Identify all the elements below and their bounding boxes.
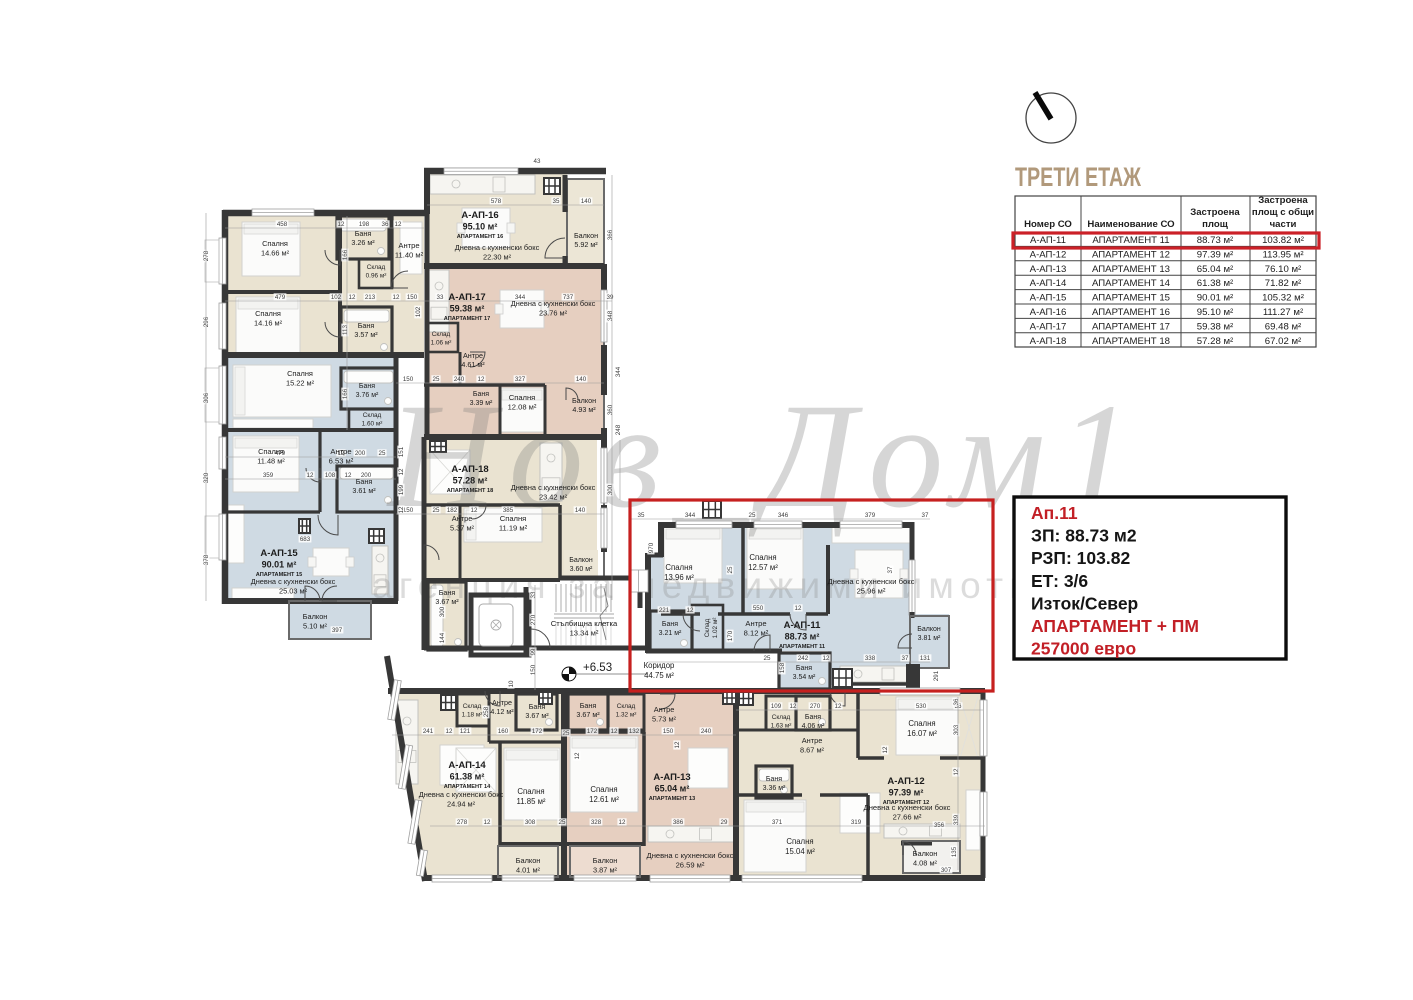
svg-text:241: 241 [423,728,434,735]
svg-text:16.07 м²: 16.07 м² [907,729,937,738]
svg-text:308: 308 [525,819,536,826]
svg-text:257000 евро: 257000 евро [1031,639,1136,659]
svg-text:26.59 м²: 26.59 м² [676,861,705,870]
svg-text:61.38 м²: 61.38 м² [450,772,485,782]
svg-text:10: 10 [508,680,515,687]
svg-text:22.30 м²: 22.30 м² [483,252,512,261]
svg-text:970: 970 [648,542,655,553]
svg-text:ТРЕТИ ЕТАЖ: ТРЕТИ ЕТАЖ [1015,162,1141,192]
svg-text:Дневна с кухненски бокс: Дневна с кухненски бокс [647,851,734,860]
svg-text:65.04 м²: 65.04 м² [1197,264,1234,275]
svg-text:А-АП-13: А-АП-13 [653,772,690,783]
svg-text:12.57 м²: 12.57 м² [748,563,778,572]
svg-text:АПАРТАМЕНТ 15: АПАРТАМЕНТ 15 [1092,293,1170,304]
svg-text:Спалня: Спалня [509,393,536,402]
svg-text:Спалня: Спалня [262,239,288,248]
svg-text:12: 12 [398,468,405,475]
svg-text:1.32 м²: 1.32 м² [616,711,637,718]
svg-text:Ап.11: Ап.11 [1031,503,1078,523]
svg-text:37: 37 [902,655,909,662]
svg-text:12: 12 [823,655,830,662]
svg-text:площ с общи: площ с общи [1252,207,1314,218]
svg-text:348: 348 [607,310,614,321]
svg-text:Изток/Север: Изток/Север [1031,593,1138,613]
svg-text:111.27 м²: 111.27 м² [1263,307,1304,318]
svg-text:АПАРТАМЕНТ 18: АПАРТАМЕНТ 18 [447,488,493,494]
svg-text:240: 240 [454,376,465,383]
svg-text:Склад: Склад [367,264,386,271]
svg-text:А-АП-11: А-АП-11 [784,620,822,631]
svg-text:76.10 м²: 76.10 м² [1265,264,1302,275]
svg-text:13.34 м²: 13.34 м² [570,629,599,638]
svg-text:242: 242 [798,655,809,662]
svg-text:12: 12 [345,472,352,479]
svg-text:Баня: Баня [473,391,489,398]
svg-text:37: 37 [887,566,894,573]
svg-text:307: 307 [941,867,952,874]
svg-text:АПАРТАМЕНТ 13: АПАРТАМЕНТ 13 [649,796,695,802]
svg-text:99: 99 [530,648,537,655]
svg-text:105.32 м²: 105.32 м² [1262,293,1305,304]
svg-text:3.61 м²: 3.61 м² [352,486,376,495]
svg-text:ЕТ: 3/6: ЕТ: 3/6 [1031,571,1088,591]
svg-text:97.39 м²: 97.39 м² [889,788,924,798]
svg-text:458: 458 [277,221,288,228]
svg-text:1.63 м²: 1.63 м² [771,722,792,729]
svg-text:23.76 м²: 23.76 м² [539,308,568,317]
svg-text:182: 182 [447,507,458,514]
svg-text:Дневна с кухненски бокс: Дневна с кухненски бокс [828,577,915,586]
svg-text:12: 12 [307,472,314,479]
svg-text:386: 386 [673,819,684,826]
svg-text:303: 303 [953,724,960,735]
svg-text:366: 366 [607,229,614,240]
svg-text:8.12 м²: 8.12 м² [744,629,769,638]
svg-text:4.12 м²: 4.12 м² [490,707,514,716]
svg-text:3.36 м²: 3.36 м² [763,785,786,792]
svg-text:Номер СО: Номер СО [1024,219,1072,230]
svg-text:37: 37 [922,512,929,519]
svg-text:12: 12 [393,294,400,301]
svg-text:151: 151 [398,446,405,457]
svg-text:150: 150 [403,376,414,383]
svg-text:12: 12 [687,607,694,614]
svg-text:35: 35 [553,198,560,205]
svg-text:АПАРТАМЕНТ 14: АПАРТАМЕНТ 14 [1092,278,1171,289]
svg-text:А-АП-15: А-АП-15 [260,548,298,559]
svg-text:550: 550 [753,605,764,612]
svg-text:3.60 м²: 3.60 м² [570,566,593,573]
svg-text:3.54 м²: 3.54 м² [793,674,816,681]
svg-text:25: 25 [563,730,570,737]
svg-text:11.40 м²: 11.40 м² [395,251,424,260]
svg-text:Спалня: Спалня [749,553,776,562]
svg-text:4.06 м²: 4.06 м² [802,723,825,730]
svg-text:44.75 м²: 44.75 м² [644,671,674,680]
svg-text:320: 320 [203,472,210,483]
svg-text:Антре: Антре [654,705,675,714]
svg-text:12: 12 [446,728,453,735]
svg-text:12: 12 [790,703,797,710]
svg-text:328: 328 [591,819,602,826]
svg-text:АПАРТАМЕНТ 16: АПАРТАМЕНТ 16 [1092,307,1170,318]
svg-text:12: 12 [349,294,356,301]
svg-text:278: 278 [203,250,210,261]
svg-text:Баня: Баня [662,621,678,628]
svg-text:АПАРТАМЕНТ 12: АПАРТАМЕНТ 12 [1092,249,1170,260]
svg-text:А-АП-18: А-АП-18 [1030,336,1067,347]
svg-text:29: 29 [721,819,728,826]
svg-text:3.76 м²: 3.76 м² [356,392,379,399]
svg-text:258: 258 [483,706,490,717]
svg-text:158: 158 [779,662,786,673]
svg-text:Баня: Баня [358,321,375,330]
svg-text:6.53 м²: 6.53 м² [329,457,354,466]
svg-text:150: 150 [407,294,418,301]
svg-text:4.61 м²: 4.61 м² [461,360,485,369]
svg-text:90.01 м²: 90.01 м² [262,560,297,570]
svg-text:24.94 м²: 24.94 м² [447,799,476,808]
svg-text:А-АП-17: А-АП-17 [448,292,485,303]
svg-text:АПАРТАМЕНТ 16: АПАРТАМЕНТ 16 [457,234,503,240]
svg-text:13.96 м²: 13.96 м² [664,573,694,582]
svg-text:12: 12 [338,221,345,228]
svg-text:346: 346 [778,512,789,519]
svg-text:371: 371 [772,819,783,826]
svg-text:25: 25 [433,376,440,383]
svg-text:1.18 м²: 1.18 м² [462,711,483,718]
svg-text:170: 170 [727,630,734,641]
svg-text:88.73 м²: 88.73 м² [1197,235,1234,246]
svg-text:108: 108 [325,472,336,479]
svg-text:А-АП-17: А-АП-17 [1030,321,1067,332]
svg-text:8.67 м²: 8.67 м² [800,745,825,754]
svg-text:Спалня: Спалня [517,787,544,796]
svg-text:А-АП-16: А-АП-16 [461,210,498,221]
svg-text:3.67 м²: 3.67 м² [576,710,600,719]
svg-text:39: 39 [607,294,614,301]
svg-text:Антре: Антре [330,447,351,456]
svg-text:11.19 м²: 11.19 м² [499,524,528,533]
svg-text:1.06 м²: 1.06 м² [431,339,452,346]
svg-text:Балкон: Балкон [913,849,938,858]
svg-text:59.38 м²: 59.38 м² [1197,321,1234,332]
svg-text:3.67 м²: 3.67 м² [435,597,459,606]
svg-text:АПАРТАМЕНТ 18: АПАРТАМЕНТ 18 [1092,336,1170,347]
svg-text:Балкон: Балкон [569,557,593,564]
svg-text:102: 102 [331,294,342,301]
svg-text:25: 25 [749,512,756,519]
svg-text:248: 248 [615,424,622,435]
svg-text:Балкон: Балкон [574,231,598,240]
svg-text:131: 131 [920,655,931,662]
svg-text:12: 12 [395,221,402,228]
svg-text:12: 12 [882,746,889,753]
svg-text:Дневна с кухненски бокс: Дневна с кухненски бокс [251,577,336,586]
svg-text:Склад: Склад [432,331,451,338]
svg-text:270: 270 [810,703,821,710]
svg-text:3.26 м²: 3.26 м² [351,238,375,247]
svg-text:12.61 м²: 12.61 м² [589,795,619,804]
svg-text:12: 12 [484,819,491,826]
svg-text:360: 360 [607,404,614,415]
svg-text:35: 35 [638,512,645,519]
svg-text:378: 378 [203,554,210,565]
svg-text:Балкон: Балкон [303,612,328,621]
svg-text:3.39 м²: 3.39 м² [470,400,493,407]
svg-text:Баня: Баня [356,477,373,486]
svg-text:АПАРТАМЕНТ 17: АПАРТАМЕНТ 17 [444,316,490,322]
svg-text:160: 160 [498,728,509,735]
svg-text:Антре: Антре [463,351,483,360]
svg-text:306: 306 [203,392,210,403]
svg-text:12: 12 [471,507,478,514]
svg-text:Стълбищна клетка: Стълбищна клетка [551,619,618,628]
svg-text:Баня: Баня [529,702,546,711]
svg-text:Антре: Антре [398,241,419,250]
svg-text:Балкон: Балкон [572,396,596,405]
svg-text:43: 43 [534,158,541,165]
svg-text:Антре: Антре [452,514,473,523]
svg-text:57.28 м²: 57.28 м² [453,476,488,486]
svg-text:Склад: Склад [772,714,791,721]
svg-text:Дневна с кухненски бокс: Дневна с кухненски бокс [864,803,951,812]
svg-text:23.42 м²: 23.42 м² [539,492,568,501]
svg-text:Антре: Антре [802,736,823,745]
svg-text:А-АП-12: А-АП-12 [1030,249,1067,260]
svg-text:11.85 м²: 11.85 м² [516,797,545,806]
svg-text:339: 339 [953,814,960,825]
svg-text:3.87 м²: 3.87 м² [593,865,618,874]
svg-text:А-АП-13: А-АП-13 [1030,264,1067,275]
svg-text:27.66 м²: 27.66 м² [893,813,922,822]
svg-text:25: 25 [379,450,386,457]
svg-text:221: 221 [659,607,670,614]
svg-text:5.73 м²: 5.73 м² [652,714,677,723]
svg-text:Спалня: Спалня [255,309,281,318]
svg-text:109: 109 [771,703,782,710]
svg-text:+6.53: +6.53 [583,662,612,674]
svg-text:479: 479 [275,294,286,301]
svg-text:97.39 м²: 97.39 м² [1197,249,1234,260]
svg-text:36: 36 [382,221,389,228]
svg-text:300: 300 [439,606,446,617]
svg-text:5.92 м²: 5.92 м² [574,240,598,249]
svg-text:Спалня: Спалня [786,837,813,846]
svg-text:36: 36 [953,698,960,705]
svg-text:135: 135 [951,846,958,857]
svg-text:0.96 м²: 0.96 м² [366,272,387,279]
svg-text:25: 25 [727,566,734,573]
svg-text:71.82 м²: 71.82 м² [1265,278,1302,289]
svg-text:397: 397 [332,627,343,634]
svg-text:240: 240 [701,728,712,735]
svg-text:Спалня: Спалня [665,563,692,572]
svg-text:АПАРТАМЕНТ 11: АПАРТАМЕНТ 11 [779,644,825,650]
svg-text:25: 25 [433,507,440,514]
svg-text:12.08 м²: 12.08 м² [508,403,537,412]
svg-text:25: 25 [764,655,771,662]
svg-text:Дневна с кухненски бокс: Дневна с кухненски бокс [511,299,596,308]
svg-text:172: 172 [587,728,598,735]
svg-text:278: 278 [457,819,468,826]
svg-text:Склад: Склад [617,703,636,710]
svg-text:61.38 м²: 61.38 м² [1197,278,1234,289]
svg-text:270: 270 [530,614,537,625]
svg-text:356: 356 [934,822,945,829]
svg-text:59.38 м²: 59.38 м² [450,304,485,314]
svg-text:359: 359 [263,472,274,479]
svg-text:90.01 м²: 90.01 м² [1197,293,1234,304]
svg-text:Дневна с кухненски бокс: Дневна с кухненски бокс [511,483,596,492]
svg-text:А-АП-16: А-АП-16 [1030,307,1067,318]
svg-text:12: 12 [674,741,681,748]
svg-text:140: 140 [581,198,592,205]
svg-text:385: 385 [503,507,514,514]
svg-text:95.10 м²: 95.10 м² [1197,307,1234,318]
svg-text:344: 344 [615,366,622,377]
svg-text:344: 344 [685,512,696,519]
svg-text:25.03 м²: 25.03 м² [279,586,308,595]
svg-text:150: 150 [663,728,674,735]
svg-text:172: 172 [532,728,543,735]
svg-text:Балкон: Балкон [917,626,941,633]
svg-text:Баня: Баня [766,776,782,783]
svg-text:А-АП-15: А-АП-15 [1030,293,1067,304]
svg-text:14.66 м²: 14.66 м² [261,248,290,257]
svg-text:1.02 м²: 1.02 м² [712,618,719,639]
svg-text:132: 132 [629,728,640,735]
svg-text:57.28 м²: 57.28 м² [1197,336,1234,347]
svg-text:Антре: Антре [745,619,766,628]
svg-text:67.02 м²: 67.02 м² [1265,336,1302,347]
svg-text:Баня: Баня [796,665,812,672]
svg-text:12: 12 [953,768,960,775]
svg-text:Склад: Склад [363,412,382,419]
svg-text:части: части [1270,219,1297,230]
svg-text:102: 102 [415,306,422,317]
svg-text:578: 578 [491,198,502,205]
svg-text:Наименование СО: Наименование СО [1087,219,1175,230]
svg-text:ЗП: 88.73 м2: ЗП: 88.73 м2 [1031,526,1137,546]
svg-text:300: 300 [607,484,614,495]
svg-text:АПАРТАМЕНТ + ПМ: АПАРТАМЕНТ + ПМ [1031,616,1199,636]
svg-text:Спалня: Спалня [500,514,527,523]
svg-text:5.10 м²: 5.10 м² [303,621,328,630]
svg-text:Коридор: Коридор [644,661,675,670]
svg-text:103.82 м²: 103.82 м² [1262,235,1305,246]
svg-text:25: 25 [559,819,566,826]
svg-text:1.60 м²: 1.60 м² [362,420,383,427]
svg-text:Спалня: Спалня [258,447,284,456]
svg-text:12: 12 [611,728,618,735]
svg-text:200: 200 [355,450,366,457]
svg-text:14.16 м²: 14.16 м² [254,318,283,327]
svg-text:3.21 м²: 3.21 м² [659,630,682,637]
svg-text:3.81 м²: 3.81 м² [918,635,941,642]
svg-text:Балкон: Балкон [516,856,541,865]
svg-text:88.73 м²: 88.73 м² [785,632,820,642]
svg-text:Балкон: Балкон [593,856,618,865]
svg-text:Спалня: Спалня [908,719,935,728]
svg-text:65.04 м²: 65.04 м² [655,784,690,794]
svg-text:291: 291 [933,670,940,681]
svg-text:12: 12 [835,703,842,710]
svg-text:327: 327 [515,376,526,383]
svg-text:113.95 м²: 113.95 м² [1262,249,1304,260]
svg-text:12: 12 [398,506,405,513]
svg-text:3.57 м²: 3.57 м² [354,330,378,339]
svg-text:4.93 м²: 4.93 м² [572,405,596,414]
svg-text:338: 338 [865,655,876,662]
svg-text:Баня: Баня [439,588,456,597]
svg-text:5.37 м²: 5.37 м² [450,523,475,532]
svg-text:Дневна с кухненски бокс: Дневна с кухненски бокс [455,243,540,252]
svg-text:площ: площ [1202,219,1228,230]
svg-text:Дневна с кухненски бокс: Дневна с кухненски бокс [419,790,504,799]
svg-text:150: 150 [530,664,537,675]
svg-text:4.08 м²: 4.08 м² [913,858,938,867]
svg-text:Склад: Склад [463,703,482,710]
svg-text:А-АП-12: А-АП-12 [887,776,924,787]
svg-text:166: 166 [342,249,349,260]
svg-text:А-АП-14: А-АП-14 [448,760,486,771]
svg-text:А-АП-11: А-АП-11 [1030,235,1066,246]
svg-text:199: 199 [398,484,405,495]
svg-text:Баня: Баня [355,229,372,238]
svg-text:12: 12 [478,376,485,383]
svg-text:379: 379 [865,512,876,519]
svg-text:Баня: Баня [359,383,375,390]
svg-text:15.22 м²: 15.22 м² [286,378,315,387]
svg-text:33: 33 [437,294,444,301]
svg-text:А-АП-14: А-АП-14 [1030,278,1067,289]
svg-text:15.04 м²: 15.04 м² [785,847,815,856]
svg-text:319: 319 [851,819,862,826]
svg-text:683: 683 [300,536,311,543]
svg-text:12: 12 [619,819,626,826]
svg-text:Антре: Антре [492,698,512,707]
svg-text:3.67 м²: 3.67 м² [525,711,549,720]
svg-text:166: 166 [342,388,349,399]
svg-text:140: 140 [576,376,587,383]
svg-text:121: 121 [460,728,471,735]
svg-text:113: 113 [342,325,349,335]
svg-text:144: 144 [439,632,446,643]
svg-text:Спалня: Спалня [590,785,617,794]
svg-text:530: 530 [916,703,927,710]
svg-text:Спалня: Спалня [287,369,313,378]
svg-text:296: 296 [203,316,210,327]
svg-text:Склад: Склад [704,618,711,637]
svg-text:12: 12 [574,752,581,759]
svg-text:Застроена: Застроена [1258,195,1308,206]
svg-text:АПАРТАМЕНТ 11: АПАРТАМЕНТ 11 [1092,235,1169,246]
svg-text:69.48 м²: 69.48 м² [1265,321,1302,332]
svg-text:11.48 м²: 11.48 м² [257,456,285,465]
svg-text:12: 12 [795,605,802,612]
svg-text:25.96 м²: 25.96 м² [857,587,886,596]
svg-text:198: 198 [359,221,370,228]
svg-text:95.10 м²: 95.10 м² [463,222,498,232]
svg-text:4.01 м²: 4.01 м² [516,865,541,874]
svg-text:213: 213 [365,294,376,301]
svg-text:33: 33 [530,591,537,598]
svg-text:РЗП: 103.82: РЗП: 103.82 [1031,548,1130,568]
svg-text:АПАРТАМЕНТ 17: АПАРТАМЕНТ 17 [1092,321,1170,332]
svg-text:АПАРТАМЕНТ 13: АПАРТАМЕНТ 13 [1092,264,1170,275]
svg-text:Баня: Баня [580,701,597,710]
